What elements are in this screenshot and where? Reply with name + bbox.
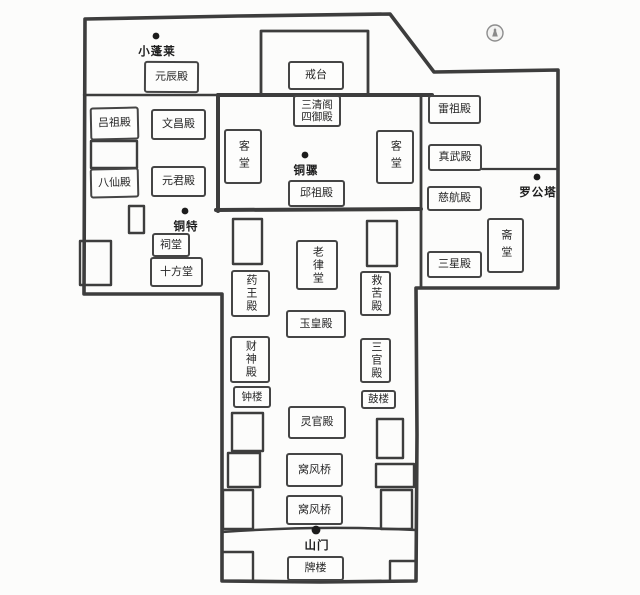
unlabeled-building — [377, 419, 403, 458]
unlabeled-building — [390, 561, 416, 581]
sanguan-hall: 三官殿 — [360, 338, 391, 383]
hall-label: 窝风桥 — [298, 464, 331, 477]
hall-label: 客堂 — [389, 140, 402, 174]
lvzu-hall: 吕祖殿 — [90, 106, 140, 140]
yaowang-hall: 药王殿 — [231, 270, 270, 317]
bell-tower: 钟楼 — [233, 386, 271, 408]
caishen-hall: 财神殿 — [230, 336, 270, 383]
hall-label: 十方堂 — [160, 266, 193, 279]
xiaopenglai-dot — [153, 33, 160, 40]
unlabeled-building — [228, 453, 260, 487]
sanxing-hall: 三星殿 — [427, 251, 482, 278]
unlabeled-building — [376, 464, 414, 487]
pailou-arch: 牌楼 — [287, 556, 344, 581]
hall-label: 鼓楼 — [368, 393, 389, 405]
jiuku-hall: 救苦殿 — [360, 271, 391, 316]
qiuzu-hall: 邱祖殿 — [288, 180, 345, 207]
tongte-dot — [182, 208, 189, 215]
shifang-hall: 十方堂 — [150, 257, 203, 287]
hall-label: 老律堂 — [311, 246, 324, 285]
sanqing-siyu-hall: 三清阁 四御殿 — [293, 95, 341, 127]
wofeng-bridge-north: 窝风桥 — [286, 453, 343, 487]
hall-label: 客堂 — [237, 140, 250, 174]
hall-label: 慈航殿 — [438, 192, 471, 205]
yuanjun-hall: 元君殿 — [151, 166, 206, 197]
cihang-hall: 慈航殿 — [427, 186, 482, 211]
tongte-label: 铜特 — [174, 218, 199, 234]
lingguan-hall: 灵官殿 — [288, 406, 346, 439]
hall-label: 牌楼 — [305, 562, 327, 575]
hall-label-line1: 三清阁 — [301, 99, 333, 111]
hall-label: 救苦殿 — [369, 274, 382, 313]
hall-label-line2: 四御殿 — [301, 111, 333, 123]
luogongta-dot — [534, 174, 541, 181]
hall-label: 药王殿 — [244, 274, 257, 313]
zhaitang-hall: 斋堂 — [487, 218, 524, 273]
wall-courtyard-bottom — [216, 209, 421, 210]
unlabeled-building — [222, 552, 253, 581]
compass-icon — [487, 25, 503, 41]
drum-tower: 鼓楼 — [361, 390, 396, 409]
hall-label: 元君殿 — [162, 175, 195, 188]
hall-label: 灵官殿 — [301, 416, 334, 429]
wofeng-bridge-south: 窝风桥 — [286, 495, 343, 525]
unlabeled-building — [223, 490, 253, 529]
hall-label: 元辰殿 — [155, 71, 188, 84]
shanmen-label: 山门 — [305, 537, 330, 553]
hall-label: 财神殿 — [244, 340, 257, 379]
unlabeled-building — [91, 141, 137, 168]
unlabeled-building — [232, 413, 263, 451]
xiaopenglai-label: 小蓬莱 — [138, 43, 176, 59]
ketang-east-hall: 客堂 — [376, 130, 414, 184]
hall-label: 祠堂 — [160, 239, 182, 252]
hall-label: 邱祖殿 — [300, 187, 333, 200]
temple-map: 元辰殿 吕祖殿 文昌殿 八仙殿 元君殿 祠堂 十方堂 戒台 三清阁 四御殿 客堂… — [0, 0, 640, 595]
hall-label: 八仙殿 — [98, 176, 131, 189]
tongluo-label: 铜骡 — [294, 162, 319, 178]
yuanchen-hall: 元辰殿 — [144, 61, 199, 93]
hall-label: 雷祖殿 — [438, 103, 471, 116]
shanmen-dot — [312, 526, 321, 535]
unlabeled-building — [233, 219, 262, 264]
hall-label: 钟楼 — [242, 391, 263, 403]
ketang-west-hall: 客堂 — [224, 129, 262, 184]
citang-hall: 祠堂 — [152, 233, 190, 257]
yuhuang-hall: 玉皇殿 — [286, 310, 346, 338]
tongluo-dot — [302, 152, 309, 159]
leizu-hall: 雷祖殿 — [428, 95, 481, 124]
luogongta-label: 罗公塔 — [519, 184, 557, 200]
hall-label: 吕祖殿 — [98, 117, 131, 130]
wenchang-hall: 文昌殿 — [151, 109, 206, 140]
hall-label: 三星殿 — [438, 258, 471, 271]
hall-label: 真武殿 — [439, 151, 472, 164]
unlabeled-building — [367, 221, 397, 266]
unlabeled-building — [129, 206, 144, 233]
hall-label: 三官殿 — [369, 341, 382, 380]
hall-label: 戒台 — [305, 69, 327, 82]
hall-label: 玉皇殿 — [300, 318, 333, 331]
jietai-hall: 戒台 — [288, 61, 344, 90]
baxian-hall: 八仙殿 — [90, 167, 140, 198]
unlabeled-building — [381, 490, 412, 529]
hall-label: 窝风桥 — [298, 504, 331, 517]
laolv-hall: 老律堂 — [296, 240, 338, 290]
zhenwu-hall: 真武殿 — [428, 144, 482, 171]
hall-label: 文昌殿 — [162, 118, 195, 131]
hall-label: 斋堂 — [499, 229, 512, 263]
